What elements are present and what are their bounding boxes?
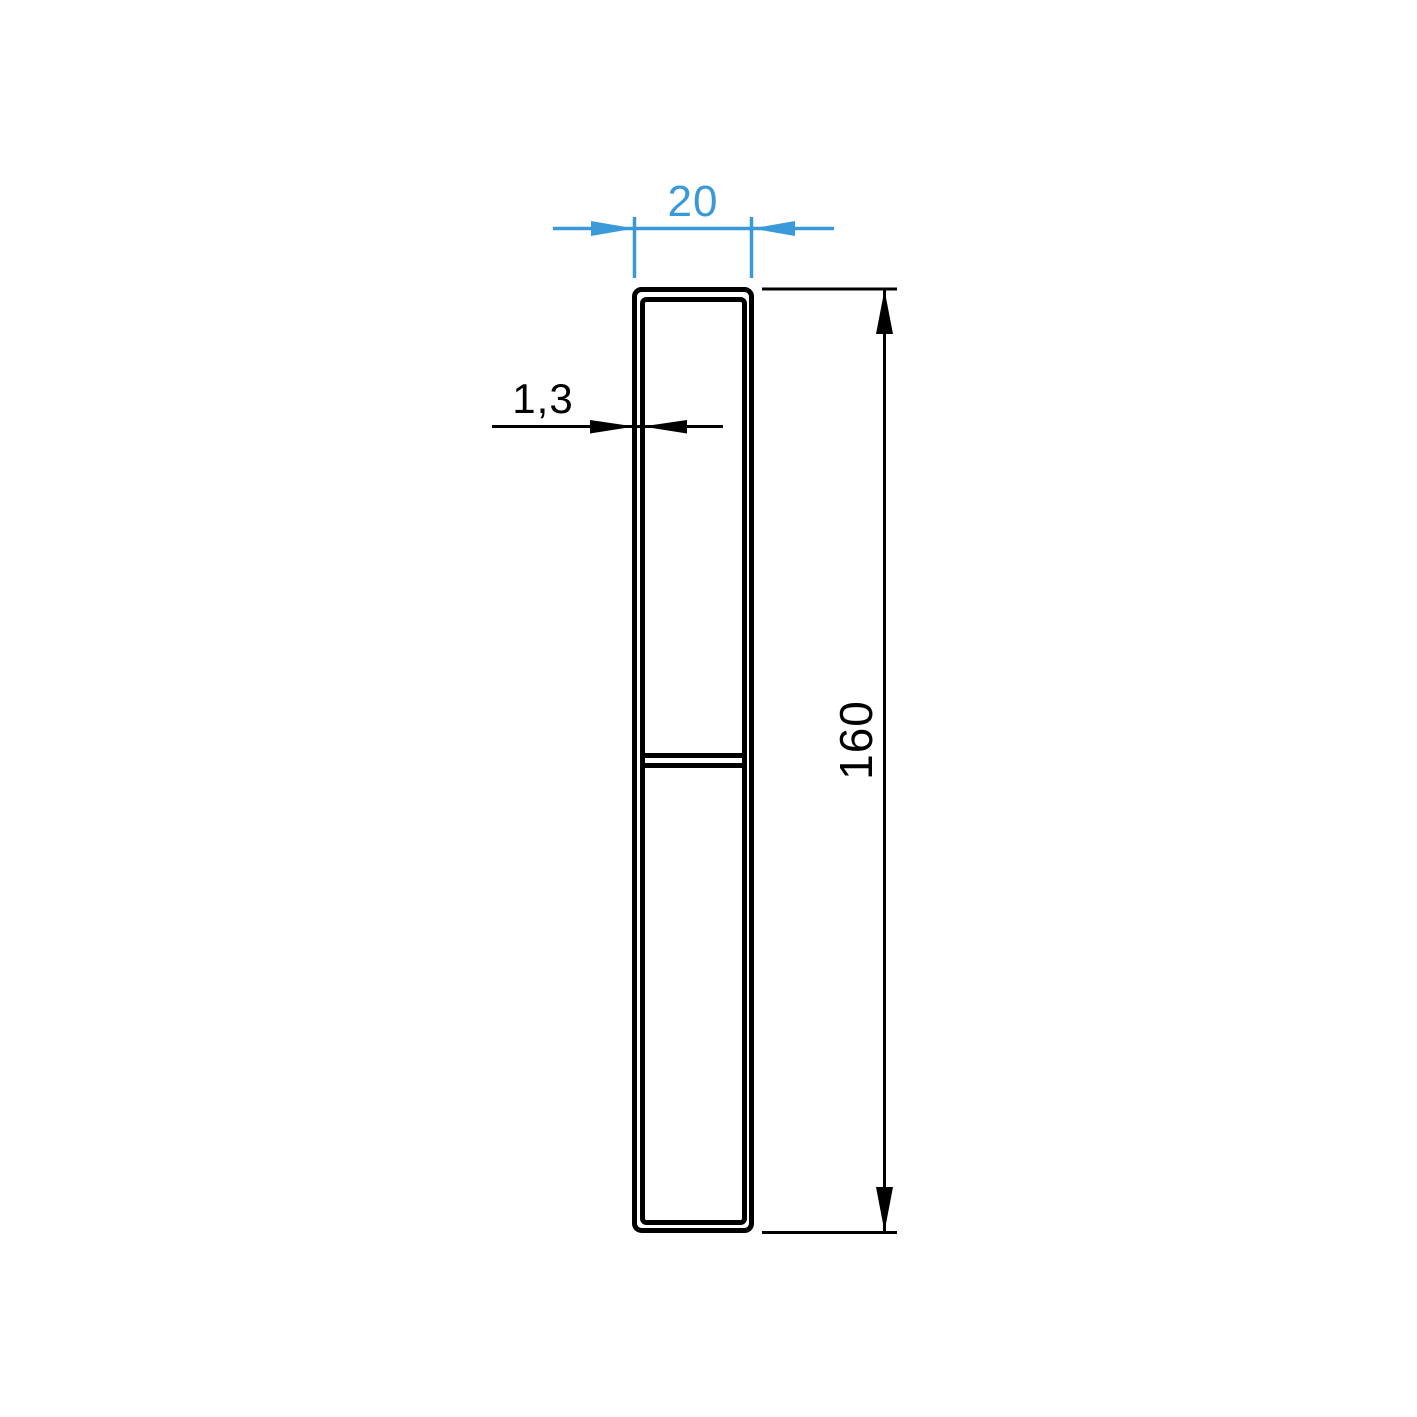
wall-thickness-label: 1,3: [512, 375, 573, 422]
tube-outer-outline: [635, 290, 752, 1231]
width-arrowhead-left-icon: [591, 221, 635, 236]
technical-drawing-canvas: 20 1,3 160: [0, 0, 1417, 1417]
width-dimension-label: 20: [668, 177, 719, 226]
height-arrowhead-top-icon: [876, 290, 893, 334]
height-arrowhead-bottom-icon: [876, 1187, 893, 1232]
drawing-page: 20 1,3 160: [0, 0, 1417, 1417]
width-dimension: 20: [553, 177, 834, 278]
wall-thickness-arrowhead-left-icon: [590, 420, 635, 434]
height-dimension: 160: [762, 289, 897, 1233]
width-arrowhead-right-icon: [752, 221, 796, 236]
height-dimension-label: 160: [830, 700, 882, 780]
tube-profile: [635, 290, 752, 1231]
